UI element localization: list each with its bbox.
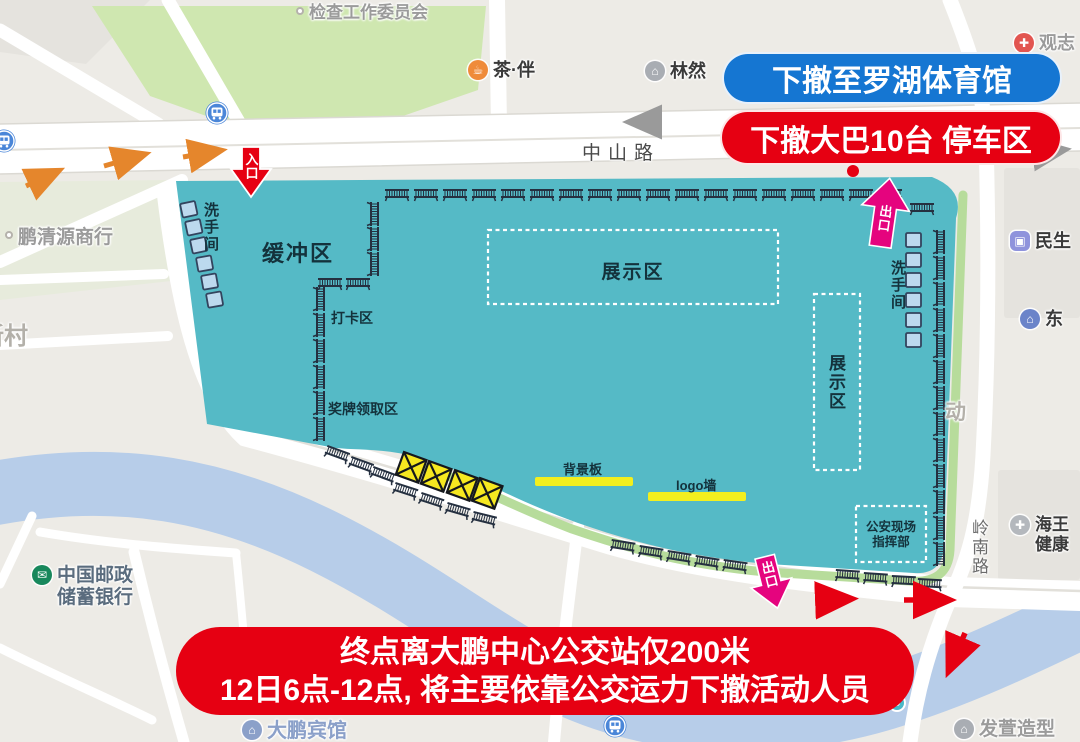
poi-label: 林然 [670,61,706,82]
bld-icon: ⌂ [1020,309,1040,329]
poi-haiwang-health: ✚海王健康 [1010,515,1069,555]
pill-icon: ✚ [1010,515,1030,535]
bottom-banner-line1: 终点离大鹏中心公交站仅200米 [340,634,750,672]
bld-icon: ⌂ [645,61,665,81]
poi-label: 东 [1045,309,1063,330]
poi-label: 民生 [1035,231,1071,252]
dot-icon [5,231,13,239]
poi-linran: ⌂林然 [645,61,706,82]
bag-icon: ▣ [1010,231,1030,251]
bld-icon: ⌂ [954,719,974,739]
entrance-gate-label: 入口 [245,153,259,180]
poi-dapeng-hotel: ⌂大鹏宾馆 [242,720,347,742]
poi-label: 发萱造型 [979,719,1055,741]
police-command-label: 公安现场指挥部 [856,520,926,550]
bus-parking-banner: 下撤大巴10台 停车区 [720,110,1062,165]
poi-minsheng: ▣民生 [1010,231,1071,252]
logo-wall-label: logo墙 [676,475,716,494]
cross-icon: ✚ [1014,33,1034,53]
lingnan-road-label: 岭南路 [971,519,990,576]
zhongshan-road-label: 中山路 [582,138,660,165]
poi-dong-bank: ⌂东 [1020,309,1063,330]
post-icon: ✉ [32,565,52,585]
poi-label: 中国邮政 [57,565,133,587]
backdrop-board-label: 背景板 [563,459,602,478]
poi-label: 茶·伴 [493,60,535,81]
poi-inspection-committee: 检查工作委员会 [296,3,428,23]
buffer-zone-label: 缓冲区 [262,236,334,268]
checkin-area-label: 打卡区 [331,308,373,328]
restroom-right-label: 洗手间 [890,261,907,311]
poi-label: 海王 [1035,515,1069,535]
poi-label: 新村 [0,323,28,351]
poi-xincun: 新村 [0,323,28,351]
tea-icon: ☕ [468,60,488,80]
poi-china-post: ✉中国邮政储蓄银行 [32,565,133,610]
poi-label: 健康 [1035,535,1069,555]
bld-icon: ⌂ [242,720,262,740]
poi-label: 观志 [1039,33,1075,54]
poi-label: 鹏清源商行 [18,227,113,249]
poi-tea-ban: ☕茶·伴 [468,60,535,81]
dot-icon [296,7,304,15]
exhibition-right-label: 展示区 [828,354,847,411]
poi-label: 储蓄银行 [57,587,133,609]
exhibition-center-label: 展示区 [488,257,778,284]
evacuate-destination-banner: 下撤至罗湖体育馆 [722,52,1062,104]
bottom-info-banner: 终点离大鹏中心公交站仅200米 12日6点-12点, 将主要依靠公交运力下撤活动… [176,627,914,715]
poi-label: 检查工作委员会 [309,3,428,23]
poi-label: 动 [945,401,966,426]
bottom-banner-line2: 12日6点-12点, 将主要依靠公交运力下撤活动人员 [220,672,870,710]
poi-pengqingyuan: 鹏清源商行 [5,227,113,249]
poi-fa-salon: ⌂发萱造型 [954,719,1055,741]
poi-dong-char: 动 [945,401,966,426]
restroom-left-label: 洗手间 [203,203,220,253]
medal-area-label: 奖牌领取区 [328,399,398,419]
poi-label: 大鹏宾馆 [267,720,347,742]
annotated-event-map: 检查工作委员会☕茶·伴⌂林然✚观志鹏清源商行▣民生⌂东✚海王健康✉中国邮政储蓄银… [0,0,1080,742]
